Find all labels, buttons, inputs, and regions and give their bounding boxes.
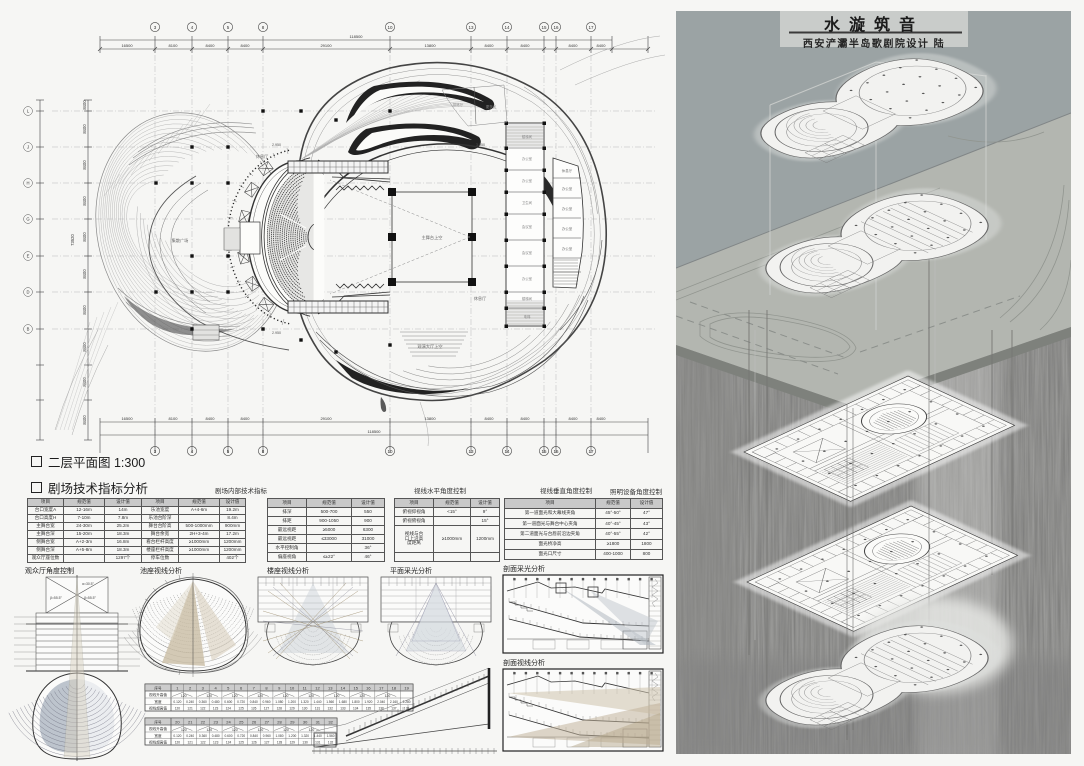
svg-text:120: 120 xyxy=(232,694,238,698)
svg-text:133: 133 xyxy=(340,707,346,711)
svg-text:平面采光分析: 平面采光分析 xyxy=(390,566,432,575)
svg-text:120: 120 xyxy=(283,728,289,732)
svg-text:0.720: 0.720 xyxy=(237,734,245,738)
svg-text:视线超高值: 视线超高值 xyxy=(149,739,167,744)
svg-text:19: 19 xyxy=(404,685,409,690)
svg-text:H: H xyxy=(26,181,29,186)
svg-text:21: 21 xyxy=(188,719,193,724)
svg-text:B: B xyxy=(27,327,30,332)
svg-text:120: 120 xyxy=(175,707,181,711)
svg-text:4: 4 xyxy=(191,449,194,454)
svg-text:17: 17 xyxy=(379,685,384,690)
svg-text:1.440: 1.440 xyxy=(314,700,322,704)
svg-text:2.160: 2.160 xyxy=(390,700,398,704)
svg-text:8: 8 xyxy=(262,25,265,30)
svg-text:27: 27 xyxy=(265,719,270,724)
svg-text:8400: 8400 xyxy=(597,416,607,421)
svg-text:休息厅: 休息厅 xyxy=(562,168,573,173)
svg-text:16: 16 xyxy=(553,449,559,454)
svg-text:125: 125 xyxy=(238,707,244,711)
svg-text:14: 14 xyxy=(341,685,346,690)
svg-text:120: 120 xyxy=(334,694,340,698)
svg-text:办公室: 办公室 xyxy=(522,276,533,281)
svg-text:楼梯间: 楼梯间 xyxy=(522,134,533,139)
svg-text:J: J xyxy=(27,145,29,150)
svg-text:3.950: 3.950 xyxy=(476,143,485,147)
svg-text:0.240: 0.240 xyxy=(186,700,194,704)
svg-text:8400: 8400 xyxy=(82,232,87,242)
svg-text:2.950: 2.950 xyxy=(272,331,281,335)
svg-text:1.440: 1.440 xyxy=(314,734,322,738)
svg-text:序号: 序号 xyxy=(154,719,162,724)
svg-text:4: 4 xyxy=(191,25,194,30)
svg-text:120: 120 xyxy=(258,728,264,732)
svg-text:25: 25 xyxy=(239,719,244,724)
svg-text:130: 130 xyxy=(302,741,308,745)
svg-text:8400: 8400 xyxy=(82,415,87,425)
svg-text:137: 137 xyxy=(391,707,397,711)
svg-text:8400: 8400 xyxy=(82,269,87,279)
svg-text:134: 134 xyxy=(353,707,359,711)
svg-text:0.480: 0.480 xyxy=(212,700,220,704)
svg-text:池座视线分析: 池座视线分析 xyxy=(140,566,182,575)
svg-text:120: 120 xyxy=(206,728,212,732)
svg-text:125: 125 xyxy=(239,741,245,745)
svg-text:131: 131 xyxy=(315,707,321,711)
svg-text:休息厅: 休息厅 xyxy=(256,153,269,160)
svg-text:0.720: 0.720 xyxy=(237,700,245,704)
svg-text:办公室: 办公室 xyxy=(522,156,533,161)
svg-text:3: 3 xyxy=(154,449,157,454)
svg-text:0.960: 0.960 xyxy=(263,734,271,738)
svg-text:0.360: 0.360 xyxy=(199,734,207,738)
svg-text:2.950: 2.950 xyxy=(272,143,281,147)
svg-text:0.120: 0.120 xyxy=(173,734,181,738)
svg-text:31: 31 xyxy=(316,719,321,724)
svg-text:15: 15 xyxy=(541,449,547,454)
svg-text:10: 10 xyxy=(290,685,295,690)
svg-text:剖面视线分析: 剖面视线分析 xyxy=(503,658,545,667)
svg-text:0.840: 0.840 xyxy=(250,700,258,704)
svg-text:18: 18 xyxy=(392,685,397,690)
svg-text:1.080: 1.080 xyxy=(276,734,284,738)
svg-text:124: 124 xyxy=(226,741,232,745)
svg-text:17: 17 xyxy=(588,25,594,30)
svg-text:观演大厅上空: 观演大厅上空 xyxy=(417,343,442,350)
svg-text:121: 121 xyxy=(187,707,193,711)
svg-text:120: 120 xyxy=(308,694,314,698)
svg-text:8400: 8400 xyxy=(82,124,87,134)
svg-text:1.560: 1.560 xyxy=(326,700,334,704)
svg-text:29: 29 xyxy=(290,719,295,724)
svg-text:1.320: 1.320 xyxy=(301,700,309,704)
svg-text:16500: 16500 xyxy=(121,416,133,421)
svg-text:135: 135 xyxy=(366,707,372,711)
svg-text:17: 17 xyxy=(588,449,594,454)
svg-text:1.800: 1.800 xyxy=(352,700,360,704)
svg-text:α=30.5°: α=30.5° xyxy=(82,582,95,586)
svg-text:20: 20 xyxy=(175,719,180,724)
svg-text:L: L xyxy=(27,109,30,114)
svg-text:8400: 8400 xyxy=(521,43,531,48)
svg-text:楼梯间: 楼梯间 xyxy=(522,296,533,301)
svg-text:8400: 8400 xyxy=(82,160,87,170)
svg-text:123: 123 xyxy=(213,707,219,711)
svg-text:120: 120 xyxy=(385,694,391,698)
svg-text:30: 30 xyxy=(303,719,308,724)
svg-text:0.480: 0.480 xyxy=(212,734,220,738)
svg-text:D: D xyxy=(26,290,29,295)
svg-text:23: 23 xyxy=(213,719,218,724)
svg-text:10: 10 xyxy=(387,25,393,30)
svg-text:1.080: 1.080 xyxy=(275,700,283,704)
svg-text:楼座视线分析: 楼座视线分析 xyxy=(267,566,309,575)
svg-text:0.360: 0.360 xyxy=(199,700,207,704)
svg-text:1.200: 1.200 xyxy=(288,700,296,704)
svg-text:123: 123 xyxy=(213,741,219,745)
svg-text:13800: 13800 xyxy=(424,43,436,48)
svg-text:13: 13 xyxy=(468,25,474,30)
svg-text:β=55.5°: β=55.5° xyxy=(50,596,63,600)
svg-text:120: 120 xyxy=(181,694,187,698)
svg-text:宽度: 宽度 xyxy=(154,733,162,738)
svg-text:26: 26 xyxy=(252,719,257,724)
svg-text:120: 120 xyxy=(283,694,289,698)
svg-text:集散广场: 集散广场 xyxy=(172,237,189,244)
svg-text:14: 14 xyxy=(504,449,510,454)
svg-text:120: 120 xyxy=(206,694,212,698)
svg-text:129: 129 xyxy=(289,707,295,711)
svg-text:120: 120 xyxy=(232,728,238,732)
svg-text:2.040: 2.040 xyxy=(377,700,385,704)
svg-text:126: 126 xyxy=(251,741,257,745)
svg-text:13: 13 xyxy=(468,449,474,454)
svg-text:8400: 8400 xyxy=(485,43,495,48)
svg-text:8400: 8400 xyxy=(569,416,579,421)
svg-text:124: 124 xyxy=(226,707,232,711)
svg-text:122: 122 xyxy=(200,741,206,745)
svg-text:15: 15 xyxy=(353,685,358,690)
svg-text:8: 8 xyxy=(262,449,265,454)
svg-text:0.600: 0.600 xyxy=(225,734,233,738)
svg-text:73520: 73520 xyxy=(70,234,75,246)
svg-text:主舞台上空: 主舞台上空 xyxy=(422,234,443,241)
svg-text:8400: 8400 xyxy=(521,416,531,421)
svg-text:28: 28 xyxy=(277,719,282,724)
svg-text:127: 127 xyxy=(264,741,270,745)
svg-text:8400: 8400 xyxy=(485,416,495,421)
svg-text:29100: 29100 xyxy=(320,416,332,421)
svg-text:5: 5 xyxy=(227,449,230,454)
svg-text:1.920: 1.920 xyxy=(364,700,372,704)
svg-text:130: 130 xyxy=(302,707,308,711)
svg-text:1.560: 1.560 xyxy=(327,734,335,738)
svg-text:休息厅: 休息厅 xyxy=(474,295,487,302)
svg-text:128: 128 xyxy=(277,707,283,711)
svg-text:E: E xyxy=(27,254,30,259)
svg-text:16500: 16500 xyxy=(121,43,133,48)
svg-text:0.240: 0.240 xyxy=(186,734,194,738)
svg-text:2.280: 2.280 xyxy=(403,700,411,704)
svg-text:1.680: 1.680 xyxy=(339,700,347,704)
svg-text:8400: 8400 xyxy=(569,43,579,48)
svg-text:会议室: 会议室 xyxy=(522,224,533,229)
svg-text:视线升高值: 视线升高值 xyxy=(149,692,167,697)
svg-text:13: 13 xyxy=(328,685,333,690)
svg-text:12: 12 xyxy=(315,685,320,690)
svg-text:15: 15 xyxy=(541,25,547,30)
svg-text:8400: 8400 xyxy=(597,43,607,48)
svg-text:8100: 8100 xyxy=(169,43,179,48)
svg-text:β=55.5°: β=55.5° xyxy=(84,596,97,600)
svg-text:办公室: 办公室 xyxy=(562,246,573,251)
svg-text:排练厅: 排练厅 xyxy=(453,102,464,107)
svg-text:8400: 8400 xyxy=(82,100,87,110)
svg-text:22: 22 xyxy=(201,719,206,724)
svg-text:视线超高值: 视线超高值 xyxy=(149,705,167,710)
svg-text:8400: 8400 xyxy=(82,305,87,315)
svg-text:29100: 29100 xyxy=(320,43,332,48)
svg-text:13800: 13800 xyxy=(424,416,436,421)
svg-text:118500: 118500 xyxy=(367,429,381,434)
svg-text:宽度: 宽度 xyxy=(154,699,162,704)
svg-text:办公室: 办公室 xyxy=(522,178,533,183)
svg-text:会议室: 会议室 xyxy=(522,250,533,255)
svg-text:3: 3 xyxy=(154,25,157,30)
svg-text:1.320: 1.320 xyxy=(301,734,309,738)
svg-text:更衣间: 更衣间 xyxy=(486,104,497,109)
svg-text:剖面采光分析: 剖面采光分析 xyxy=(503,564,545,573)
svg-text:14: 14 xyxy=(504,25,510,30)
svg-text:8400: 8400 xyxy=(206,43,216,48)
svg-text:0.840: 0.840 xyxy=(250,734,258,738)
svg-text:8100: 8100 xyxy=(169,416,179,421)
svg-text:办公室: 办公室 xyxy=(562,186,573,191)
svg-text:32: 32 xyxy=(328,719,333,724)
svg-text:视线升高值: 视线升高值 xyxy=(149,726,167,731)
svg-text:8400: 8400 xyxy=(241,43,251,48)
svg-text:132: 132 xyxy=(328,707,334,711)
svg-text:卫生间: 卫生间 xyxy=(522,200,533,205)
svg-text:0.600: 0.600 xyxy=(224,700,232,704)
svg-text:0.120: 0.120 xyxy=(173,700,181,704)
svg-text:办公室: 办公室 xyxy=(562,206,573,211)
svg-text:8400: 8400 xyxy=(82,196,87,206)
svg-text:5: 5 xyxy=(227,25,230,30)
svg-text:8400: 8400 xyxy=(206,416,216,421)
svg-text:129: 129 xyxy=(290,741,296,745)
svg-text:24: 24 xyxy=(226,719,231,724)
svg-text:8400: 8400 xyxy=(241,416,251,421)
svg-text:127: 127 xyxy=(264,707,270,711)
svg-text:序号: 序号 xyxy=(154,685,162,690)
svg-text:131: 131 xyxy=(315,741,321,745)
svg-text:0.960: 0.960 xyxy=(263,700,271,704)
svg-text:10: 10 xyxy=(387,449,393,454)
svg-text:120: 120 xyxy=(181,728,187,732)
svg-text:121: 121 xyxy=(188,741,194,745)
svg-text:办公室: 办公室 xyxy=(562,226,573,231)
svg-text:120: 120 xyxy=(359,694,365,698)
svg-text:120: 120 xyxy=(309,728,315,732)
svg-text:1.200: 1.200 xyxy=(288,734,296,738)
svg-text:G: G xyxy=(26,217,29,222)
svg-text:120: 120 xyxy=(175,741,181,745)
svg-text:16: 16 xyxy=(366,685,371,690)
svg-text:观众厅角度控制: 观众厅角度控制 xyxy=(25,566,74,575)
svg-text:126: 126 xyxy=(251,707,257,711)
svg-text:128: 128 xyxy=(277,741,283,745)
svg-text:118500: 118500 xyxy=(349,34,363,39)
svg-text:120: 120 xyxy=(257,694,263,698)
svg-text:16: 16 xyxy=(553,25,559,30)
svg-text:122: 122 xyxy=(200,707,206,711)
svg-text:132: 132 xyxy=(328,741,334,745)
